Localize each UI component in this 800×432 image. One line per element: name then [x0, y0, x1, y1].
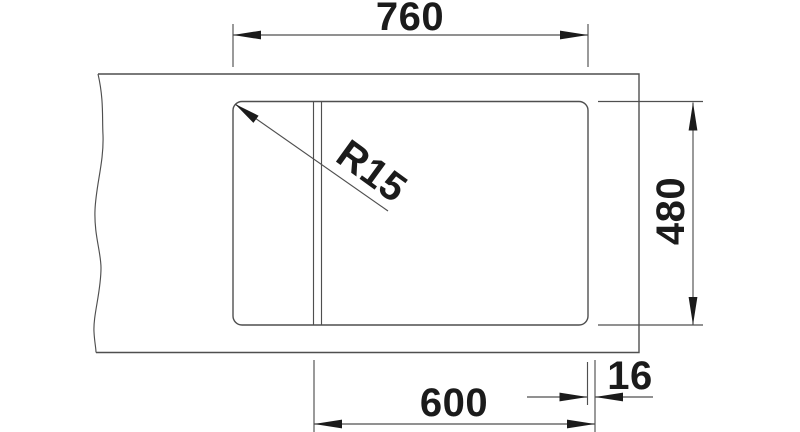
- arrowhead-right: [560, 31, 588, 40]
- dimension-label-overall-width: 760: [376, 0, 444, 39]
- arrowhead-left: [314, 420, 342, 429]
- dimension-bowl-width: 600: [314, 360, 595, 432]
- break-line-wavy-edge: [94, 74, 103, 353]
- radius-arrowhead: [235, 104, 259, 123]
- arrowhead-left: [233, 31, 261, 40]
- arrowhead-right: [567, 420, 595, 429]
- dimension-overall-width: 760: [233, 0, 588, 67]
- dimension-label-edge-offset: 16: [607, 354, 653, 398]
- technical-drawing-canvas: 760 480 600 16: [0, 0, 800, 432]
- sink-dimension-drawing: 760 480 600 16: [0, 0, 800, 432]
- arrowhead-pointing-right: [560, 393, 588, 402]
- arrowhead-top: [689, 103, 698, 131]
- bowl-divider-lines: [314, 102, 322, 326]
- sink-rim-outline: [233, 102, 588, 326]
- countertop-outline-group: [94, 74, 639, 353]
- dimension-label-bowl-width: 600: [420, 381, 488, 425]
- dimension-depth: 480: [598, 102, 703, 326]
- countertop-outline: [96, 74, 639, 353]
- dimension-label-depth: 480: [649, 177, 693, 245]
- radius-callout: R15: [235, 104, 415, 211]
- arrowhead-bottom: [689, 297, 698, 325]
- dimension-edge-offset: 16: [527, 354, 653, 405]
